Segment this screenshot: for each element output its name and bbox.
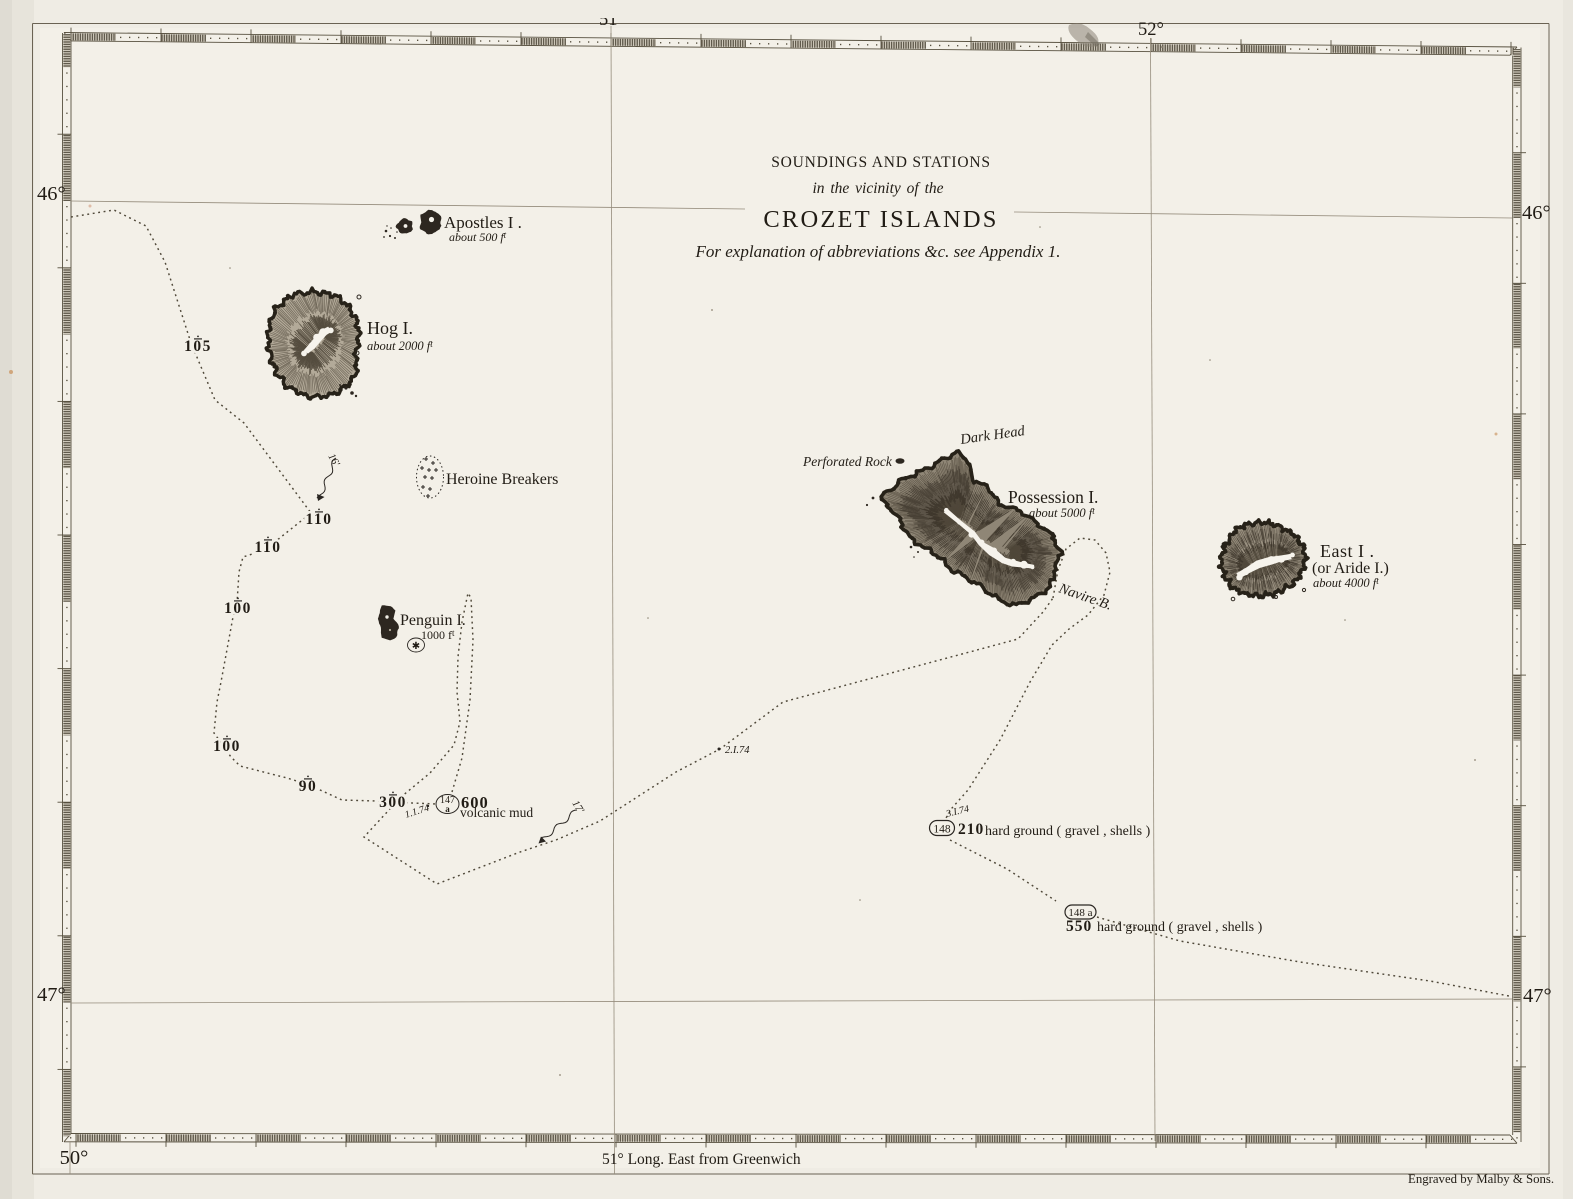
- svg-text:about 2000 ft: about 2000 ft: [367, 339, 433, 353]
- svg-text:90: 90: [299, 778, 318, 795]
- svg-text:Heroine Breakers: Heroine Breakers: [446, 471, 558, 488]
- svg-text:51° Long. East from Greenwich: 51° Long. East from Greenwich: [602, 1151, 801, 1168]
- svg-text:For explanation of abbreviatio: For explanation of abbreviations &c. see…: [695, 242, 1061, 261]
- svg-text:52°: 52°: [1138, 20, 1164, 40]
- svg-text:100: 100: [224, 600, 252, 617]
- svg-text:50°: 50°: [60, 1147, 89, 1169]
- svg-text:148: 148: [933, 824, 951, 836]
- svg-text:(or Aride I.): (or Aride I.): [1312, 560, 1389, 577]
- svg-text:46°: 46°: [37, 183, 66, 205]
- svg-text:✱: ✱: [412, 641, 420, 652]
- svg-text:SOUNDINGS AND STATIONS: SOUNDINGS AND STATIONS: [771, 154, 991, 171]
- svg-text:Penguin I.: Penguin I.: [400, 612, 466, 629]
- svg-text:in the vicinity of the: in the vicinity of the: [812, 180, 943, 197]
- svg-text:about 4000 ft: about 4000 ft: [1313, 576, 1379, 590]
- svg-text:110: 110: [255, 539, 282, 556]
- svg-text:2.I.74: 2.I.74: [725, 745, 750, 756]
- svg-text:210: 210: [958, 821, 984, 838]
- svg-text:hard ground ( gravel , shells: hard ground ( gravel , shells ): [1097, 920, 1263, 935]
- svg-text:hard ground ( gravel , shells: hard ground ( gravel , shells ): [985, 824, 1151, 839]
- svg-text:110: 110: [306, 511, 333, 528]
- svg-text:Perforated Rock: Perforated Rock: [802, 454, 893, 469]
- svg-text:Possession I.: Possession I.: [1008, 487, 1098, 507]
- svg-text:about 5000 ft: about 5000 ft: [1029, 506, 1095, 520]
- svg-text:105: 105: [184, 338, 212, 355]
- svg-text:100: 100: [213, 738, 241, 755]
- svg-text:Engraved by Malby & Sons.: Engraved by Malby & Sons.: [1408, 1172, 1554, 1186]
- svg-text:1000 ft: 1000 ft: [421, 628, 455, 642]
- svg-text:East I .: East I .: [1320, 541, 1374, 561]
- svg-text:a: a: [445, 804, 450, 814]
- svg-text:47°: 47°: [37, 984, 66, 1006]
- svg-text:300: 300: [379, 794, 407, 811]
- svg-text:about 500 ft: about 500 ft: [449, 230, 507, 244]
- svg-text:CROZET ISLANDS: CROZET ISLANDS: [763, 206, 998, 233]
- svg-text:Hog I.: Hog I.: [367, 318, 413, 338]
- svg-text:volcanic mud: volcanic mud: [460, 805, 533, 820]
- svg-text:550: 550: [1066, 918, 1092, 935]
- svg-text:47°: 47°: [1523, 985, 1552, 1007]
- svg-text:46°: 46°: [1522, 202, 1551, 224]
